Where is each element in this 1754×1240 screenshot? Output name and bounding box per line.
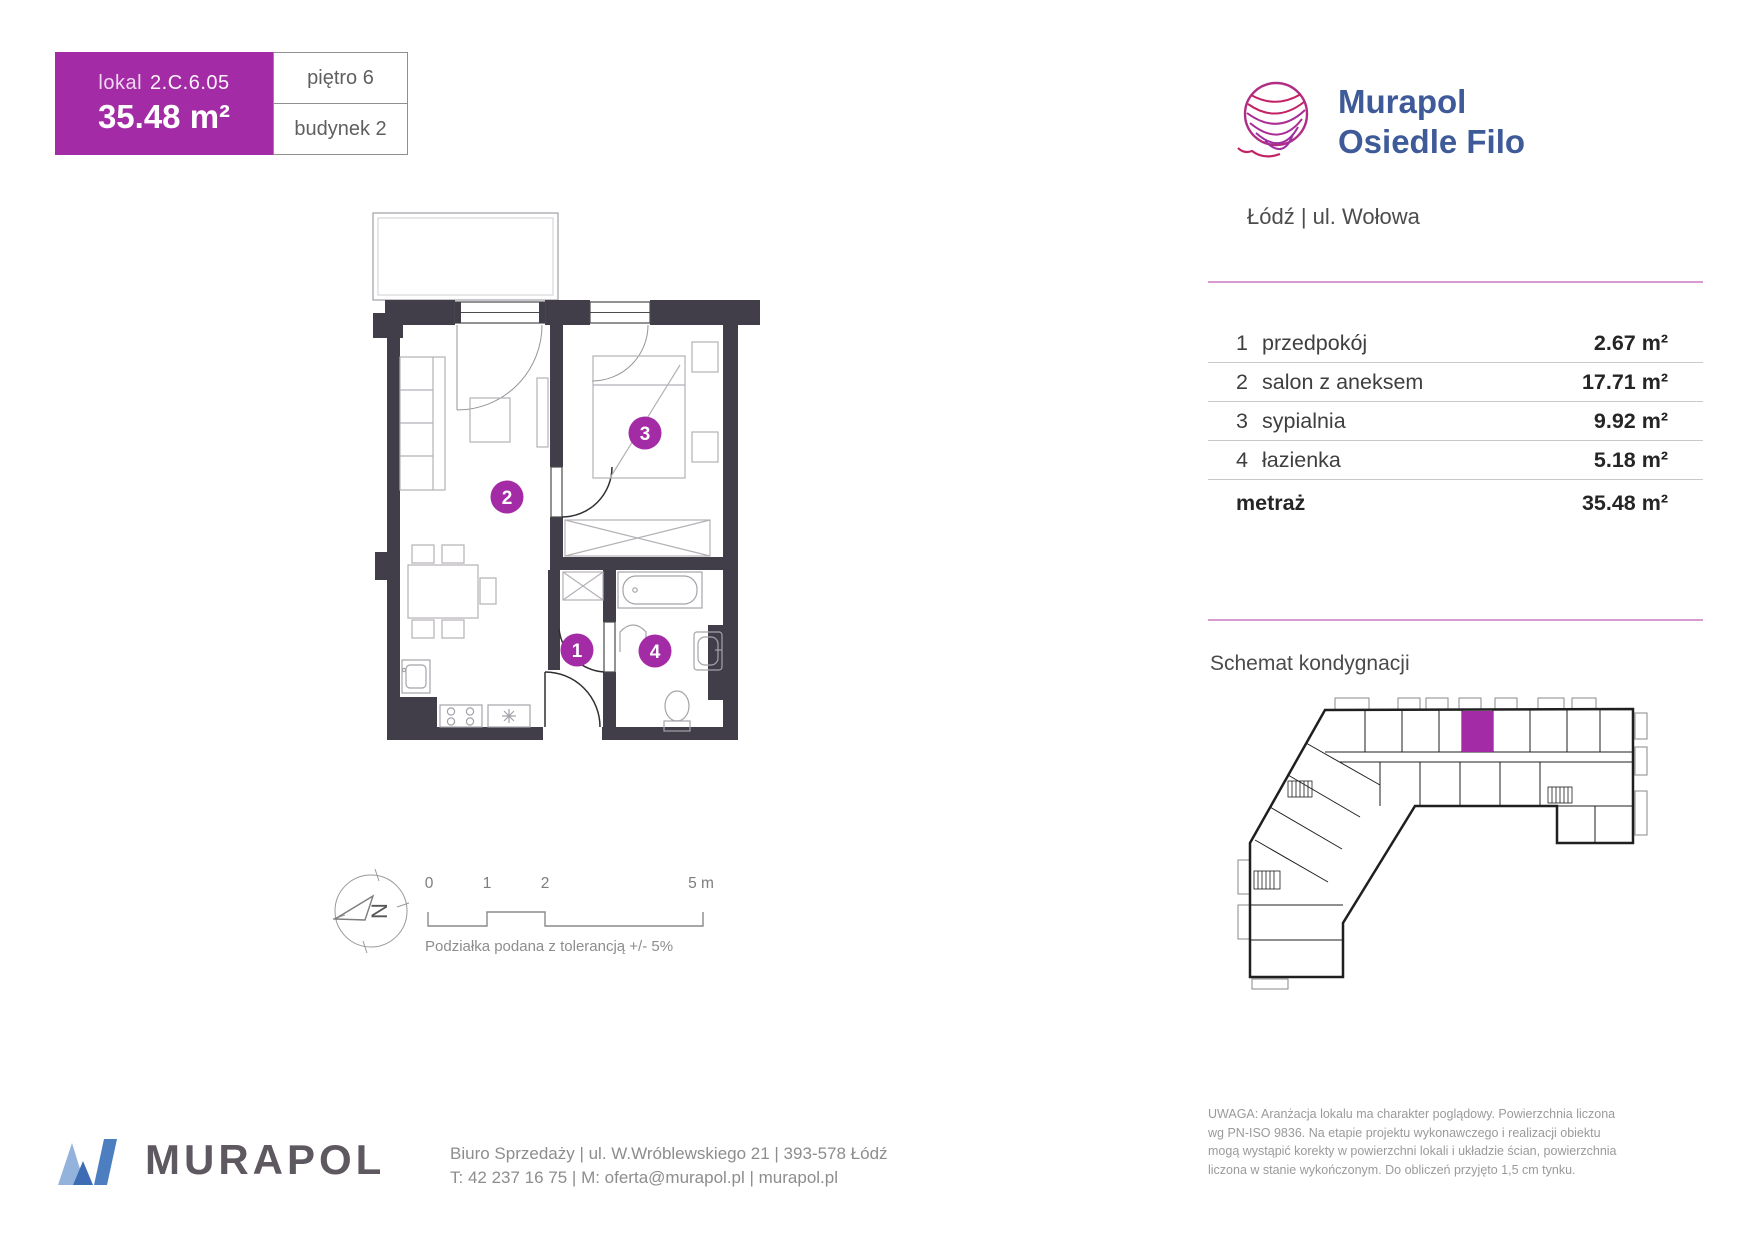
room-badge-1: 1 — [561, 634, 594, 667]
disclaimer-line: mogą wystąpić korekty w powierzchni loka… — [1208, 1142, 1617, 1161]
sales-office-phones: T: 42 237 16 75 | M: oferta@murapol.pl |… — [450, 1166, 888, 1190]
building-label: budynek 2 — [274, 104, 407, 154]
yarn-ball-icon — [1232, 72, 1318, 167]
total-area: 35.48 m² — [1582, 491, 1668, 516]
scale-bar: 0 1 2 5 m Podziałka podana z tolerancją … — [425, 870, 725, 960]
room-area: 2.67 m² — [1594, 331, 1668, 356]
room-name: sypialnia — [1262, 409, 1346, 434]
table-row: 1 przedpokój 2.67 m² — [1208, 324, 1703, 363]
brand-line1: Murapol — [1338, 82, 1525, 122]
stove — [440, 705, 482, 727]
unit-area: 35.48 m² — [98, 98, 230, 136]
murapol-logo-text: MURAPOL — [145, 1136, 385, 1184]
room-badge-2: 2 — [491, 481, 524, 514]
svg-text:N: N — [367, 903, 392, 919]
room-name: przedpokój — [1262, 331, 1367, 356]
scale-caption: Podziałka podana z tolerancją +/- 5% — [425, 938, 673, 955]
balcony-outline — [373, 213, 558, 300]
lokal-number: 2.C.6.05 — [150, 72, 230, 94]
window-swing — [592, 325, 648, 381]
room-area: 9.92 m² — [1594, 409, 1668, 434]
unit-number-line: lokal2.C.6.05 — [98, 72, 229, 95]
table-total-row: metraż 35.48 m² — [1208, 480, 1703, 526]
room-number: 3 — [1236, 409, 1262, 434]
disclaimer-line: wg PN-ISO 9836. Na etapie projektu wykon… — [1208, 1124, 1617, 1143]
dining-table-chairs — [408, 545, 496, 638]
kitchen-sink — [402, 660, 430, 693]
sales-office-contact: Biuro Sprzedaży | ul. W.Wróblewskiego 21… — [450, 1142, 888, 1190]
rooms-table: 1 przedpokój 2.67 m² 2 salon z aneksem 1… — [1208, 283, 1703, 526]
room-area: 5.18 m² — [1594, 448, 1668, 473]
balcony-door-swing — [457, 325, 542, 410]
disclaimer-line: liczona w stanie wykończonym. Do oblicze… — [1208, 1161, 1617, 1180]
svg-text:0: 0 — [425, 875, 434, 892]
highlighted-unit — [1462, 711, 1493, 752]
svg-text:2: 2 — [541, 875, 550, 892]
disclaimer-line: UWAGA: Aranżacja lokalu ma charakter pog… — [1208, 1105, 1617, 1124]
room-number: 2 — [1236, 370, 1262, 395]
murapol-logo-icon — [58, 1133, 122, 1185]
lokal-label: lokal — [98, 72, 142, 94]
hall-shelf — [563, 572, 603, 600]
bedroom-window — [590, 302, 650, 323]
room-name: salon z aneksem — [1262, 370, 1423, 395]
brand-location: Łódź | ul. Wołowa — [1247, 204, 1420, 230]
brand-line2: Osiedle Filo — [1338, 122, 1525, 162]
sales-office-address: Biuro Sprzedaży | ul. W.Wróblewskiego 21… — [450, 1142, 888, 1166]
room-area: 17.71 m² — [1582, 370, 1668, 395]
building-outline — [1250, 709, 1633, 977]
balcony-door-window — [455, 302, 545, 323]
table-row: 2 salon z aneksem 17.71 m² — [1208, 363, 1703, 402]
bed — [593, 342, 718, 478]
apartment-floor-plan: 1 2 3 4 — [330, 180, 760, 750]
floor-label: piętro 6 — [274, 53, 407, 104]
floor-schematic-title: Schemat kondygnacji — [1210, 652, 1410, 676]
table-row: 4 łazienka 5.18 m² — [1208, 441, 1703, 480]
room-badge-4: 4 — [639, 635, 672, 668]
svg-text:3: 3 — [640, 424, 651, 445]
room-number: 1 — [1236, 331, 1262, 356]
room-name: łazienka — [1262, 448, 1341, 473]
toilet — [664, 691, 690, 731]
coffee-table — [470, 398, 510, 442]
kitchen-counter — [488, 705, 530, 727]
svg-text:5 m: 5 m — [688, 875, 714, 892]
sofa — [400, 357, 445, 490]
svg-text:2: 2 — [502, 488, 513, 509]
wardrobe — [565, 520, 710, 556]
brand-title: Murapol Osiedle Filo — [1338, 82, 1525, 162]
room-badge-3: 3 — [629, 417, 662, 450]
separator-line-bottom — [1208, 619, 1703, 621]
unit-header-card: lokal2.C.6.05 35.48 m² — [55, 52, 273, 155]
room-number: 4 — [1236, 448, 1262, 473]
entrance-door — [545, 672, 600, 727]
tv-sideboard — [537, 378, 548, 447]
table-row: 3 sypialnia 9.92 m² — [1208, 402, 1703, 441]
floor-building-card: piętro 6 budynek 2 — [273, 52, 408, 155]
bathtub — [618, 572, 702, 608]
bedroom-door — [551, 467, 612, 517]
svg-text:1: 1 — [483, 875, 492, 892]
svg-text:1: 1 — [572, 641, 583, 662]
compass-north-icon: N — [323, 863, 419, 959]
total-label: metraż — [1236, 491, 1305, 516]
svg-text:4: 4 — [650, 642, 661, 663]
floor-schematic-drawing — [1230, 695, 1660, 995]
disclaimer-text: UWAGA: Aranżacja lokalu ma charakter pog… — [1208, 1105, 1617, 1179]
